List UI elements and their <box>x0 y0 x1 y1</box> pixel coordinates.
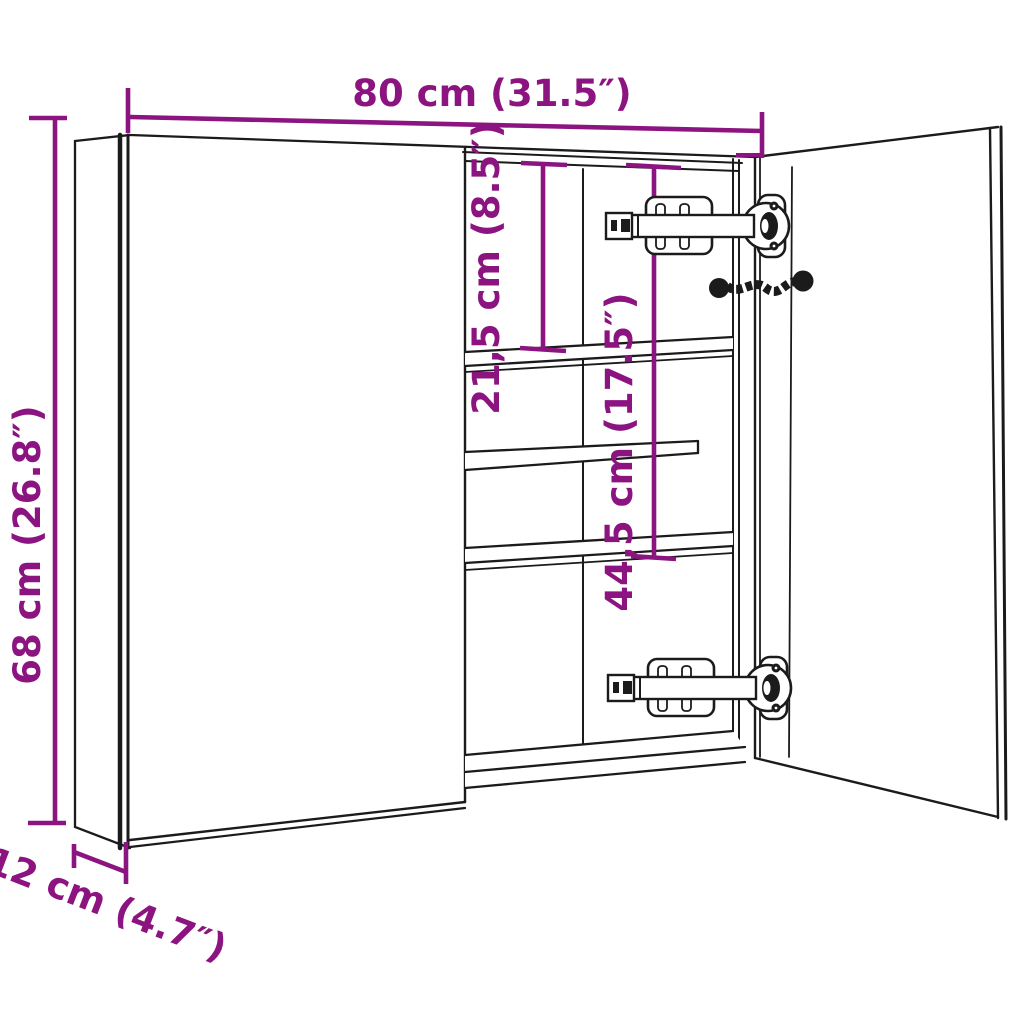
dimension-upper-shelf-line <box>520 163 567 351</box>
height-dimension-label: 68 cm (26.8″) <box>6 405 49 684</box>
product-dimension-diagram: 80 cm (31.5″) 68 cm (26.8″) 12 cm (4.7″)… <box>0 0 1024 1024</box>
cabinet-drawing: 80 cm (31.5″) 68 cm (26.8″) 12 cm (4.7″)… <box>0 0 1024 1024</box>
hinge-top-icon <box>606 195 789 257</box>
middle-section-height-label: 44,5 cm (17.5″) <box>598 292 641 611</box>
depth-dimension-label: 12 cm (4.7″) <box>0 839 233 970</box>
width-dimension-label: 80 cm (31.5″) <box>352 72 631 115</box>
upper-shelf-spacing-label: 21,5 cm (8.5″) <box>465 121 508 414</box>
right-door-open <box>755 127 1006 820</box>
left-side-panel <box>75 135 130 848</box>
cabinet-body <box>75 127 1006 848</box>
hinge-bottom-icon <box>608 657 791 719</box>
